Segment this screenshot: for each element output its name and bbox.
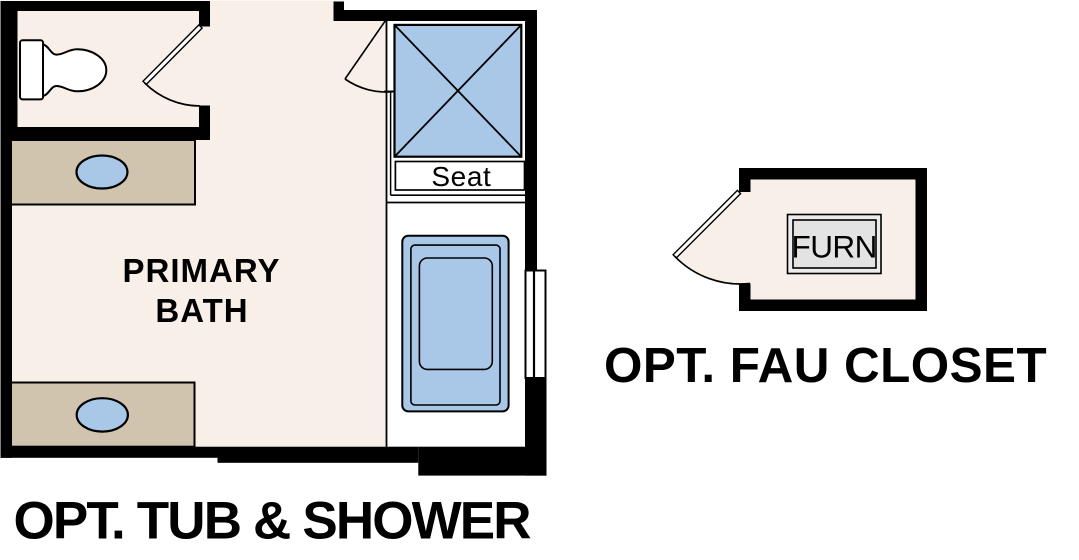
svg-text:OPT. TUB & SHOWER: OPT. TUB & SHOWER — [14, 492, 532, 551]
svg-text:BATH: BATH — [155, 292, 248, 329]
svg-text:Seat: Seat — [431, 161, 491, 192]
svg-text:PRIMARY: PRIMARY — [123, 252, 281, 289]
svg-text:FURN: FURN — [792, 229, 877, 265]
svg-text:OPT. FAU CLOSET: OPT. FAU CLOSET — [604, 338, 1047, 393]
